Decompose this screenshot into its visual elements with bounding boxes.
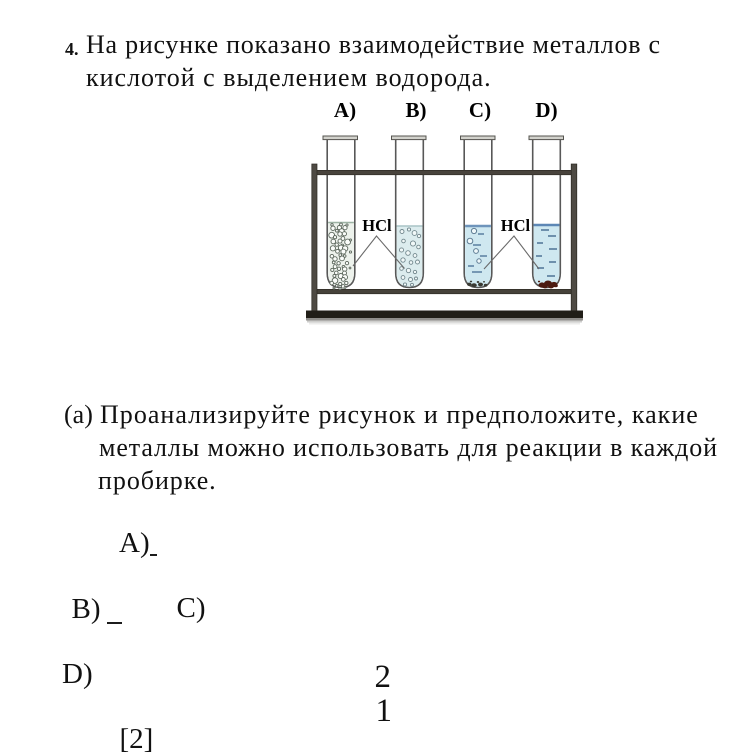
svg-text:HCl: HCl — [362, 216, 392, 235]
svg-text:A): A) — [334, 98, 356, 122]
svg-text:D): D) — [535, 98, 557, 122]
svg-text:B): B) — [406, 98, 427, 122]
svg-text:C): C) — [469, 98, 491, 122]
svg-text:HCl: HCl — [501, 216, 531, 235]
